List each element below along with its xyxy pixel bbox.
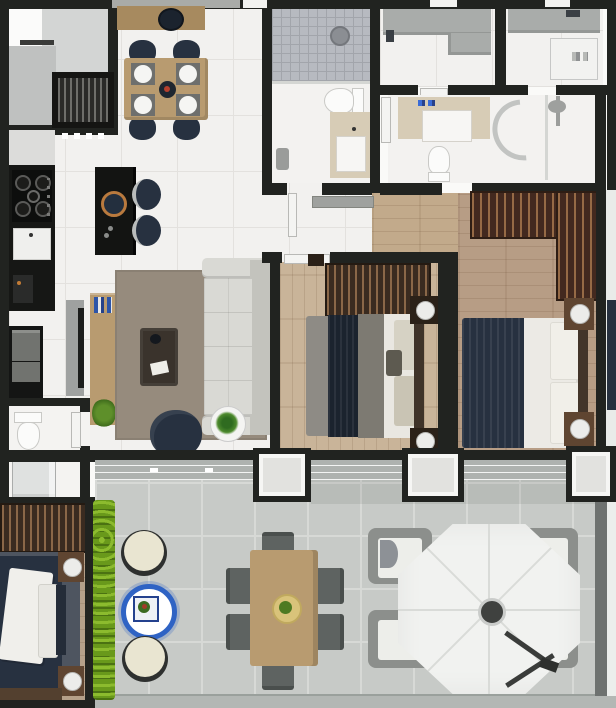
- hallway-floor: [372, 193, 458, 258]
- plate-2: [179, 65, 197, 83]
- bedroom2-wardrobe-top: [470, 191, 566, 239]
- bedroom3-wall-bottom: [0, 700, 95, 708]
- outdoor-centerpiece-plant: [279, 601, 292, 614]
- sliding-door-handle-2: [205, 468, 213, 472]
- sliding-door-handle-1: [150, 468, 158, 472]
- bath-a-shower-head: [330, 26, 350, 46]
- sink-faucet: [29, 233, 33, 237]
- pouf-2-cushion: [125, 637, 165, 677]
- bedroom3-lamp-1: [63, 558, 82, 577]
- hall-door-leaf: [312, 196, 374, 208]
- kitchen-counter-light: [9, 130, 55, 168]
- bath-d-toilet-tank: [428, 172, 450, 182]
- bedroom1-wall-top-r: [330, 252, 446, 263]
- blue-table-plant-dot: [142, 604, 147, 609]
- wall-left: [0, 9, 9, 505]
- bedroom2-lamp-1: [570, 304, 590, 324]
- bedroom1-dresser: [308, 254, 324, 266]
- plate-4: [179, 96, 197, 114]
- neighbor-bed-sliver: [607, 300, 616, 410]
- column-window-a: [253, 448, 311, 502]
- coffee-machine-dot: [17, 281, 21, 285]
- pouf-1-cushion: [124, 531, 164, 571]
- wc-door-leaf: [71, 412, 81, 448]
- island-dot-2: [104, 233, 109, 238]
- wc-door-gap: [80, 412, 90, 446]
- bath-a-glass-line: [272, 81, 370, 84]
- column-window-b-glass: [412, 458, 454, 492]
- wall-service-laundry: [495, 0, 506, 90]
- bedroom1-wall-top-l: [262, 252, 282, 263]
- bath-d-door-leaf: [381, 97, 391, 143]
- bedroom3-wardrobe: [0, 503, 88, 553]
- bedroom3-pillows: [38, 584, 58, 658]
- column-window-c-glass: [576, 456, 606, 492]
- coffee-machine: [13, 275, 33, 303]
- column-window-c: [566, 446, 616, 502]
- wc-wall-top: [0, 398, 88, 406]
- bath-d-wall-right: [595, 95, 606, 190]
- wc-toilet-bowl: [17, 422, 40, 450]
- stove-burner-3: [15, 201, 31, 217]
- wall-bath-south-l: [380, 183, 442, 195]
- outdoor-chair-bottom: [262, 662, 294, 690]
- bedroom2-wardrobe-right: [556, 191, 598, 301]
- service-counter-leg: [448, 33, 491, 55]
- wicker-chair-1-pillow: [380, 540, 398, 568]
- bath-a-wall-bottom-l: [262, 183, 287, 195]
- window-top-3: [545, 0, 570, 7]
- window-top-2: [430, 0, 457, 7]
- column-window-a-glass: [263, 458, 301, 492]
- parasol-hub: [478, 598, 506, 626]
- bath-a-shower: [272, 9, 370, 81]
- bedroom2-lamp-2: [570, 419, 590, 439]
- bedroom1-lamp-1: [416, 301, 435, 320]
- living-plant: [215, 411, 239, 435]
- bath-a-wall-right: [370, 0, 380, 193]
- hedge-planter: [93, 500, 115, 700]
- bath-a-basin: [336, 136, 366, 172]
- wall-bed1-bed2: [438, 252, 458, 458]
- service-tap: [386, 30, 394, 42]
- bar-stool-1: [132, 179, 161, 210]
- bath-a-door-leaf: [288, 193, 297, 237]
- bath-d-shower-head: [548, 100, 566, 113]
- detergent-bottles: [572, 52, 588, 61]
- wall-row1-c: [556, 85, 607, 95]
- console-plant: [92, 398, 116, 428]
- shoe-rack-marks: [62, 133, 104, 139]
- bath-d-basin: [422, 110, 472, 142]
- coffee-table-bowl: [150, 334, 161, 344]
- slatted-cabinet-slats: [58, 78, 108, 122]
- sliding-door-bedroom2: [464, 460, 566, 480]
- wall-row1-b: [448, 85, 528, 95]
- island-bowl: [101, 191, 127, 217]
- bath-a-bin: [276, 148, 289, 170]
- bedroom1-headboard: [414, 314, 424, 438]
- laundry-counter: [508, 9, 600, 33]
- centerpiece-dot: [164, 86, 170, 92]
- plate-3: [134, 96, 152, 114]
- sliding-door-bedroom1: [311, 460, 402, 480]
- stove-burner-center: [27, 190, 40, 203]
- wall-row1-a: [380, 85, 418, 95]
- console-books: [94, 297, 112, 313]
- wall-right-top: [607, 0, 616, 190]
- bedroom1-bed-navy-throw: [328, 315, 362, 437]
- sideboard-bowl: [158, 8, 184, 31]
- sliding-door-living: [95, 460, 255, 480]
- service-counter-top: [383, 9, 491, 35]
- microwave-front: [12, 362, 40, 382]
- balcony-right-wall: [595, 500, 607, 696]
- bedroom3-headboard: [56, 585, 66, 655]
- window-top-1: [243, 0, 267, 8]
- bath-a-faucet: [352, 127, 356, 131]
- floorplan-canvas: [0, 0, 616, 708]
- bedroom1-pillow-2: [394, 376, 416, 426]
- oven-front: [12, 330, 40, 361]
- bath-d-toiletries: [418, 100, 436, 106]
- bath-a-toilet-bowl: [324, 88, 354, 114]
- bath-a-wall-left: [262, 9, 272, 193]
- sofa-backrest: [250, 260, 270, 435]
- bedroom2-wall-east: [596, 185, 606, 460]
- stove-burner-1: [15, 175, 31, 191]
- tv-screen: [78, 308, 84, 388]
- balcony-right-outside: [607, 500, 616, 696]
- door-hardware-mark: [20, 40, 54, 45]
- sofa-seats: [204, 278, 252, 415]
- laundry-tap: [566, 10, 580, 17]
- bedroom1-wall-west: [270, 258, 280, 453]
- bedroom2-pillow-1: [550, 322, 580, 380]
- bath-d-toilet-bowl: [428, 146, 450, 174]
- bedroom2-bed-navy-duvet: [462, 318, 528, 448]
- balcony-edge: [95, 694, 616, 708]
- island-dot-1: [108, 226, 113, 231]
- bedroom1-pillow-small: [386, 350, 402, 376]
- bedroom3-lamp-2: [63, 672, 82, 691]
- column-window-b: [402, 448, 464, 502]
- plate-1: [134, 65, 152, 83]
- wall-top: [0, 0, 616, 9]
- bar-stool-2: [132, 215, 161, 246]
- stove-knobs: [47, 178, 50, 216]
